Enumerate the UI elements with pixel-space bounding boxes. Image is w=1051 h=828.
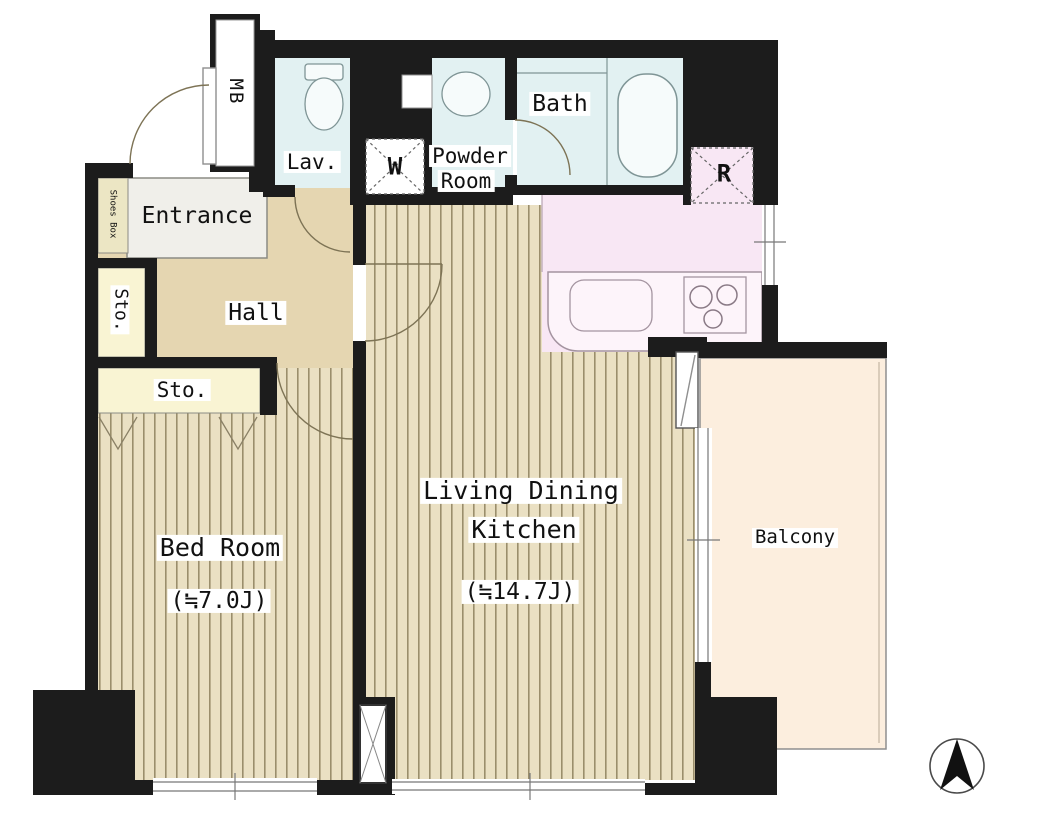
- powder-room-label-1: Powder: [429, 145, 511, 167]
- hall-label: Hall: [225, 301, 286, 325]
- powder-room-label-2: Room: [438, 170, 495, 192]
- wall: [695, 662, 711, 698]
- wall: [263, 58, 275, 197]
- wall: [353, 341, 366, 697]
- bathtub-icon: [618, 74, 677, 177]
- wall: [145, 258, 157, 357]
- wall-bottom: [645, 783, 700, 795]
- wall: [353, 187, 366, 265]
- lav-label: Lav.: [284, 151, 341, 173]
- wall: [263, 185, 295, 197]
- entrance-door-arc: [130, 85, 209, 164]
- ldk-label-1: Living Dining: [420, 478, 622, 504]
- balcony-floor: [700, 358, 886, 749]
- ldk-label-2: Kitchen: [468, 517, 579, 543]
- wall-pillar-se: [695, 697, 777, 795]
- powder-sink-icon: [442, 72, 490, 116]
- pipe-shaft: [360, 705, 386, 783]
- balcony-label: Balcony: [752, 528, 838, 548]
- bedroom-floor: [98, 368, 353, 780]
- floor-plan: MB Lav. Powder Room W Bath R Entrance Sh…: [0, 0, 1051, 828]
- ldk-size-label: (≒14.7J): [462, 580, 579, 604]
- kitchen-sink-icon: [570, 280, 652, 331]
- shoes-box-label: Shoes Box: [107, 187, 116, 242]
- floor-plan-drawing: [0, 0, 1051, 828]
- wall: [753, 147, 778, 205]
- wall: [513, 185, 685, 195]
- wall: [260, 357, 277, 415]
- refrigerator-label: R: [714, 161, 734, 186]
- toilet-icon: [305, 78, 343, 130]
- entrance-label: Entrance: [139, 204, 256, 228]
- storage-lower-label: Sto.: [154, 379, 211, 401]
- wall: [85, 357, 260, 368]
- wall-balcony-top: [695, 342, 887, 358]
- washer-label: W: [385, 154, 405, 179]
- bath-label: Bath: [529, 92, 590, 116]
- wall-pillar-sw: [33, 690, 135, 795]
- wall-pillar-ne: [683, 40, 778, 147]
- wall: [85, 163, 133, 178]
- bedroom-label: Bed Room: [157, 535, 283, 561]
- chase-box: [402, 75, 432, 108]
- mb-label: MB: [225, 76, 245, 109]
- balcony-service-door: [676, 352, 698, 428]
- north-arrow-icon: [930, 739, 984, 793]
- storage-upper-label: Sto.: [111, 285, 130, 334]
- ldk-bottom-window: [392, 779, 645, 794]
- wall: [683, 147, 691, 205]
- wall: [505, 58, 517, 120]
- bedroom-size-label: (≒7.0J): [168, 589, 271, 613]
- entrance-door-leaf: [203, 68, 216, 164]
